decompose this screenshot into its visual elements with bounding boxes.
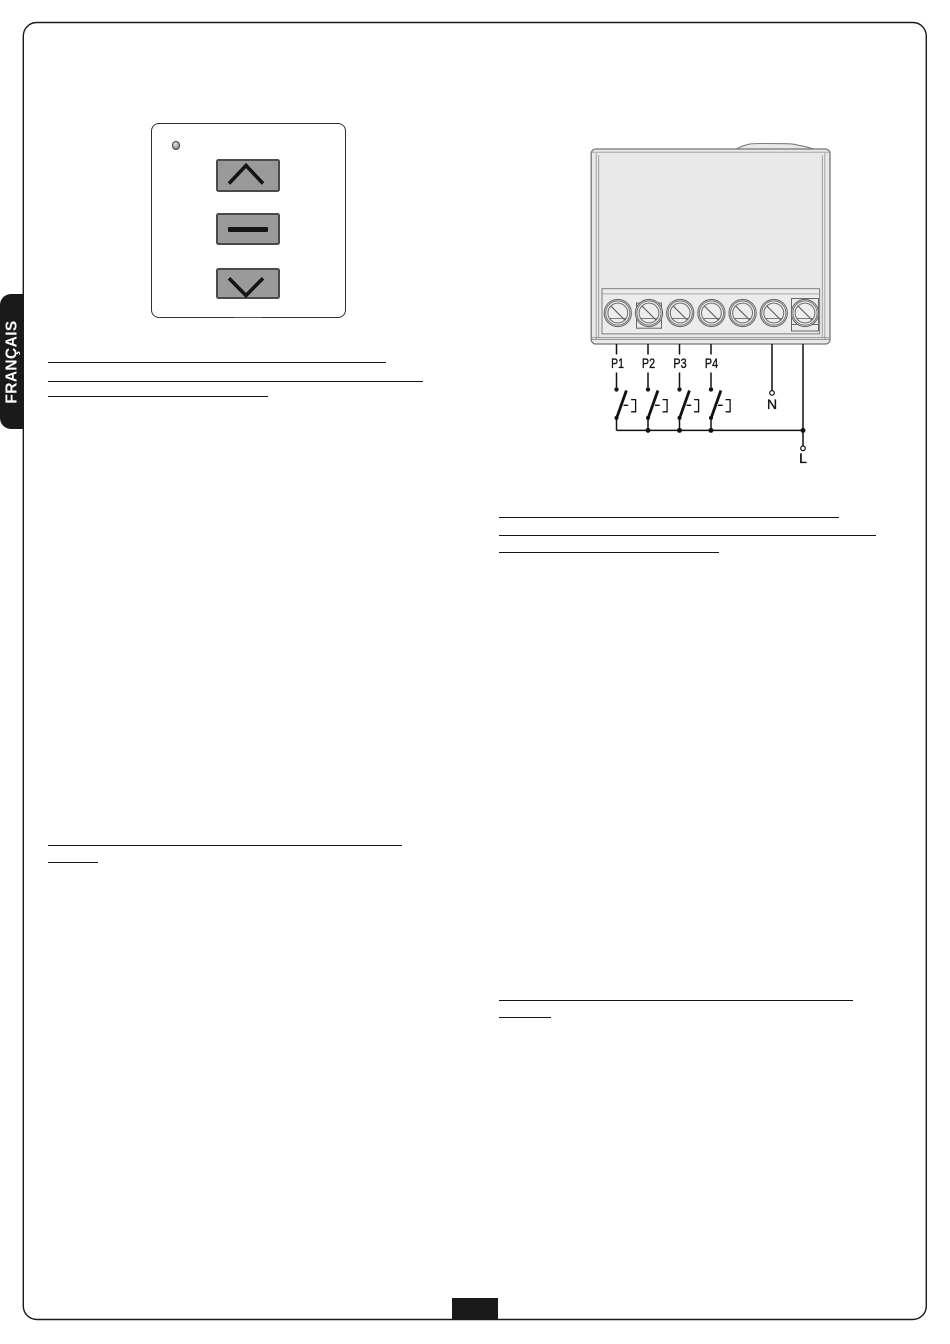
svg-text:N: N xyxy=(767,396,777,412)
svg-text:P3: P3 xyxy=(673,355,686,371)
svg-text:P2: P2 xyxy=(642,355,655,371)
svg-text:P1: P1 xyxy=(611,355,624,371)
svg-text:L: L xyxy=(799,450,807,466)
svg-text:P4: P4 xyxy=(705,355,719,371)
